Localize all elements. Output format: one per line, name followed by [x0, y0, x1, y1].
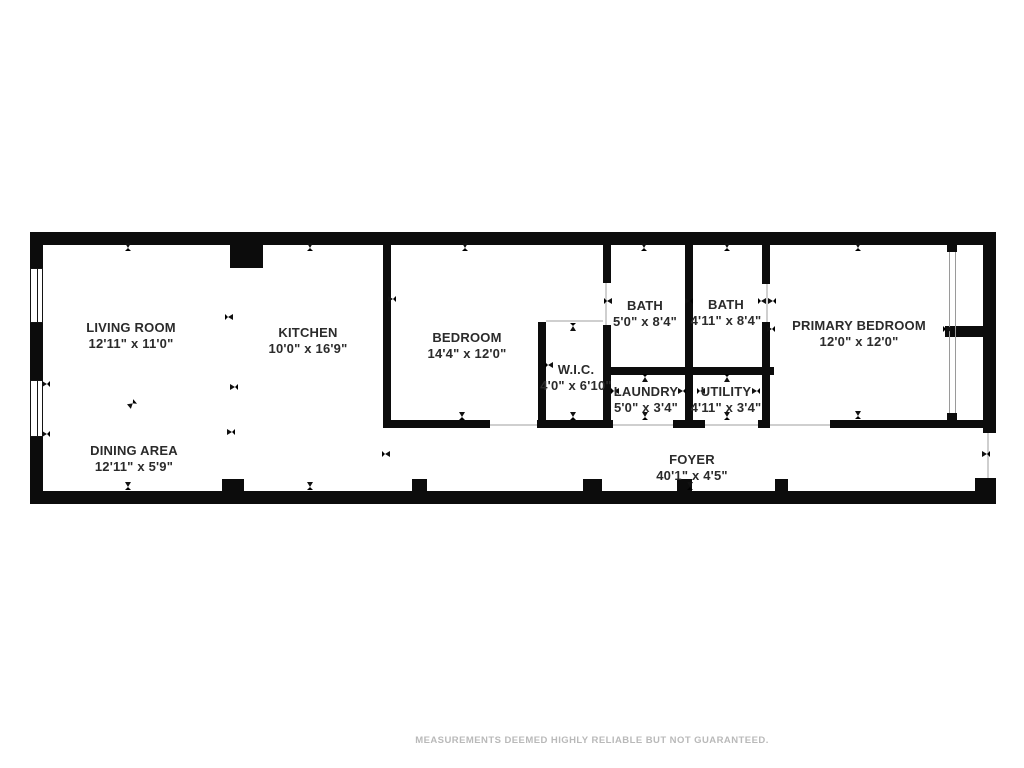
room-name: DINING AREA — [24, 443, 244, 459]
dimension-arrow — [982, 451, 990, 457]
dimension-arrow — [127, 399, 137, 409]
dimension-arrow — [125, 243, 131, 251]
door-opening-line — [613, 424, 673, 426]
room-dimensions: 40'1" x 4'5" — [582, 468, 802, 484]
window-mullion — [37, 269, 38, 322]
dimension-arrow — [724, 243, 730, 251]
room-name: PRIMARY BEDROOM — [749, 318, 969, 334]
wall-segment — [758, 420, 770, 428]
dimension-arrow — [687, 482, 693, 490]
wall-segment — [30, 232, 996, 245]
dimension-arrow — [459, 412, 465, 420]
wall-segment — [762, 245, 770, 284]
room-dimensions: 12'0" x 12'0" — [749, 334, 969, 350]
room-name: BEDROOM — [357, 330, 577, 346]
room-name: W.I.C. — [466, 362, 686, 378]
dimension-arrow — [125, 482, 131, 490]
door-opening-line — [770, 424, 830, 426]
room-dimensions: 14'4" x 12'0" — [357, 346, 577, 362]
window-mullion — [37, 381, 38, 436]
wall-segment — [383, 420, 490, 428]
room-label-foyer: FOYER 40'1" x 4'5" — [582, 452, 802, 483]
dimension-arrow — [230, 384, 238, 390]
dimension-arrow — [42, 431, 50, 437]
dimension-arrow — [855, 243, 861, 251]
wall-segment — [830, 420, 983, 428]
window-symbol — [30, 268, 43, 323]
room-label-primary-bedroom: PRIMARY BEDROOM 12'0" x 12'0" — [749, 318, 969, 349]
room-label-dining-area: DINING AREA 12'11" x 5'9" — [24, 443, 244, 474]
wall-segment — [537, 420, 613, 428]
window-symbol — [30, 380, 43, 437]
floorplan: LIVING ROOM 12'11" x 11'0" KITCHEN 10'0"… — [0, 0, 1024, 768]
dimension-arrow — [307, 243, 313, 251]
dimension-arrow — [462, 243, 468, 251]
disclaimer-text: MEASUREMENTS DEEMED HIGHLY RELIABLE BUT … — [292, 735, 892, 746]
wall-segment — [947, 245, 957, 252]
room-name: UTILITY — [616, 384, 836, 400]
room-name: FOYER — [582, 452, 802, 468]
wall-segment — [975, 478, 996, 491]
dimension-arrow — [382, 451, 390, 457]
dimension-arrow — [724, 374, 730, 382]
wall-segment — [230, 243, 263, 268]
room-label-utility: UTILITY 4'11" x 3'4" — [616, 384, 836, 415]
wall-segment — [673, 420, 705, 428]
room-dimensions: 12'11" x 5'9" — [24, 459, 244, 475]
door-opening-line — [705, 424, 758, 426]
dimension-arrow — [42, 381, 50, 387]
room-dimensions: 4'11" x 3'4" — [616, 400, 836, 416]
wall-segment — [947, 413, 957, 421]
wall-segment — [603, 245, 611, 283]
wall-segment — [30, 491, 996, 504]
dimension-arrow — [307, 482, 313, 490]
wall-segment — [412, 479, 427, 491]
wall-segment — [983, 245, 996, 433]
dimension-arrow — [855, 411, 861, 419]
dimension-arrow — [227, 429, 235, 435]
room-label-bedroom: BEDROOM 14'4" x 12'0" — [357, 330, 577, 361]
wall-segment — [222, 479, 244, 492]
dimension-arrow — [388, 296, 396, 302]
dimension-arrow — [641, 243, 647, 251]
door-opening-line — [490, 424, 537, 426]
room-name: BATH — [616, 297, 836, 313]
